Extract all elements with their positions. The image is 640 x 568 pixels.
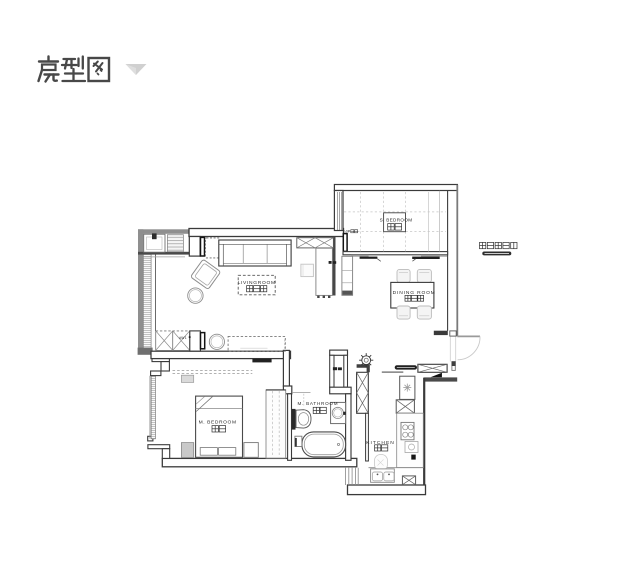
svg-text:2.0P: 2.0P [343, 230, 351, 234]
svg-text:#W1: #W1 [179, 336, 187, 340]
svg-text:M. BATHROOM: M. BATHROOM [297, 401, 338, 406]
svg-text:DINING ROOM: DINING ROOM [393, 290, 436, 296]
svg-text:M. BEDROOM: M. BEDROOM [199, 419, 237, 425]
svg-text:S. BEDROOM: S. BEDROOM [380, 218, 413, 223]
